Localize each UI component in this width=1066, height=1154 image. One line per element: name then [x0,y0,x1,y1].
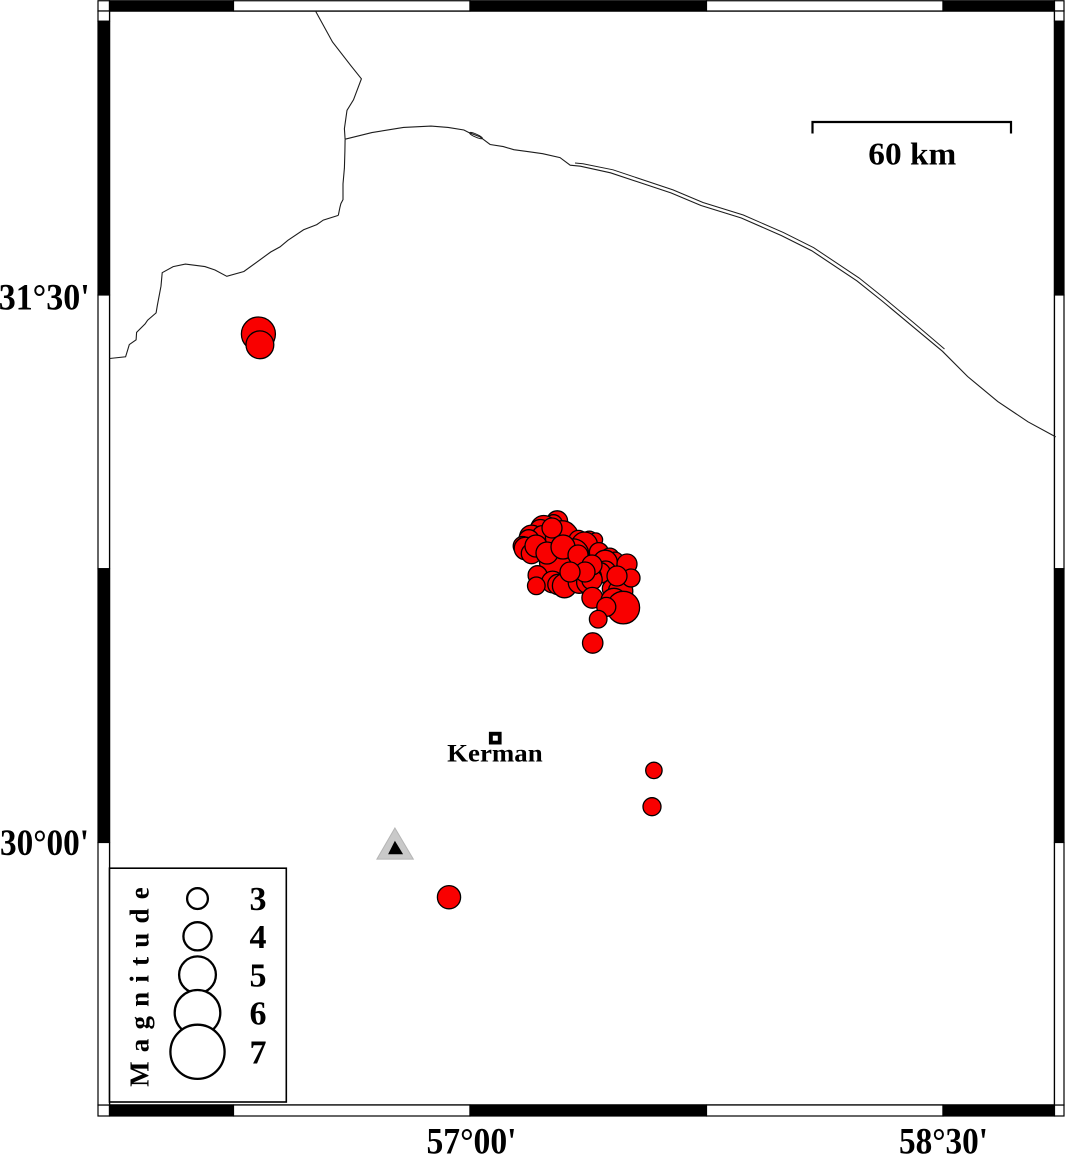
svg-text:57°00': 57°00' [427,1122,517,1154]
svg-text:3: 3 [250,881,267,918]
svg-text:6: 6 [250,995,267,1032]
svg-text:5: 5 [250,957,267,994]
svg-text:Kerman: Kerman [447,741,543,768]
svg-text:7: 7 [250,1034,267,1071]
svg-text:31°30': 31°30' [0,278,90,319]
svg-text:Magnitude: Magnitude [125,878,155,1087]
svg-text:30°00': 30°00' [0,823,89,864]
svg-text:58°30': 58°30' [899,1122,988,1154]
svg-text:60 km: 60 km [868,136,956,172]
svg-text:4: 4 [250,919,267,956]
